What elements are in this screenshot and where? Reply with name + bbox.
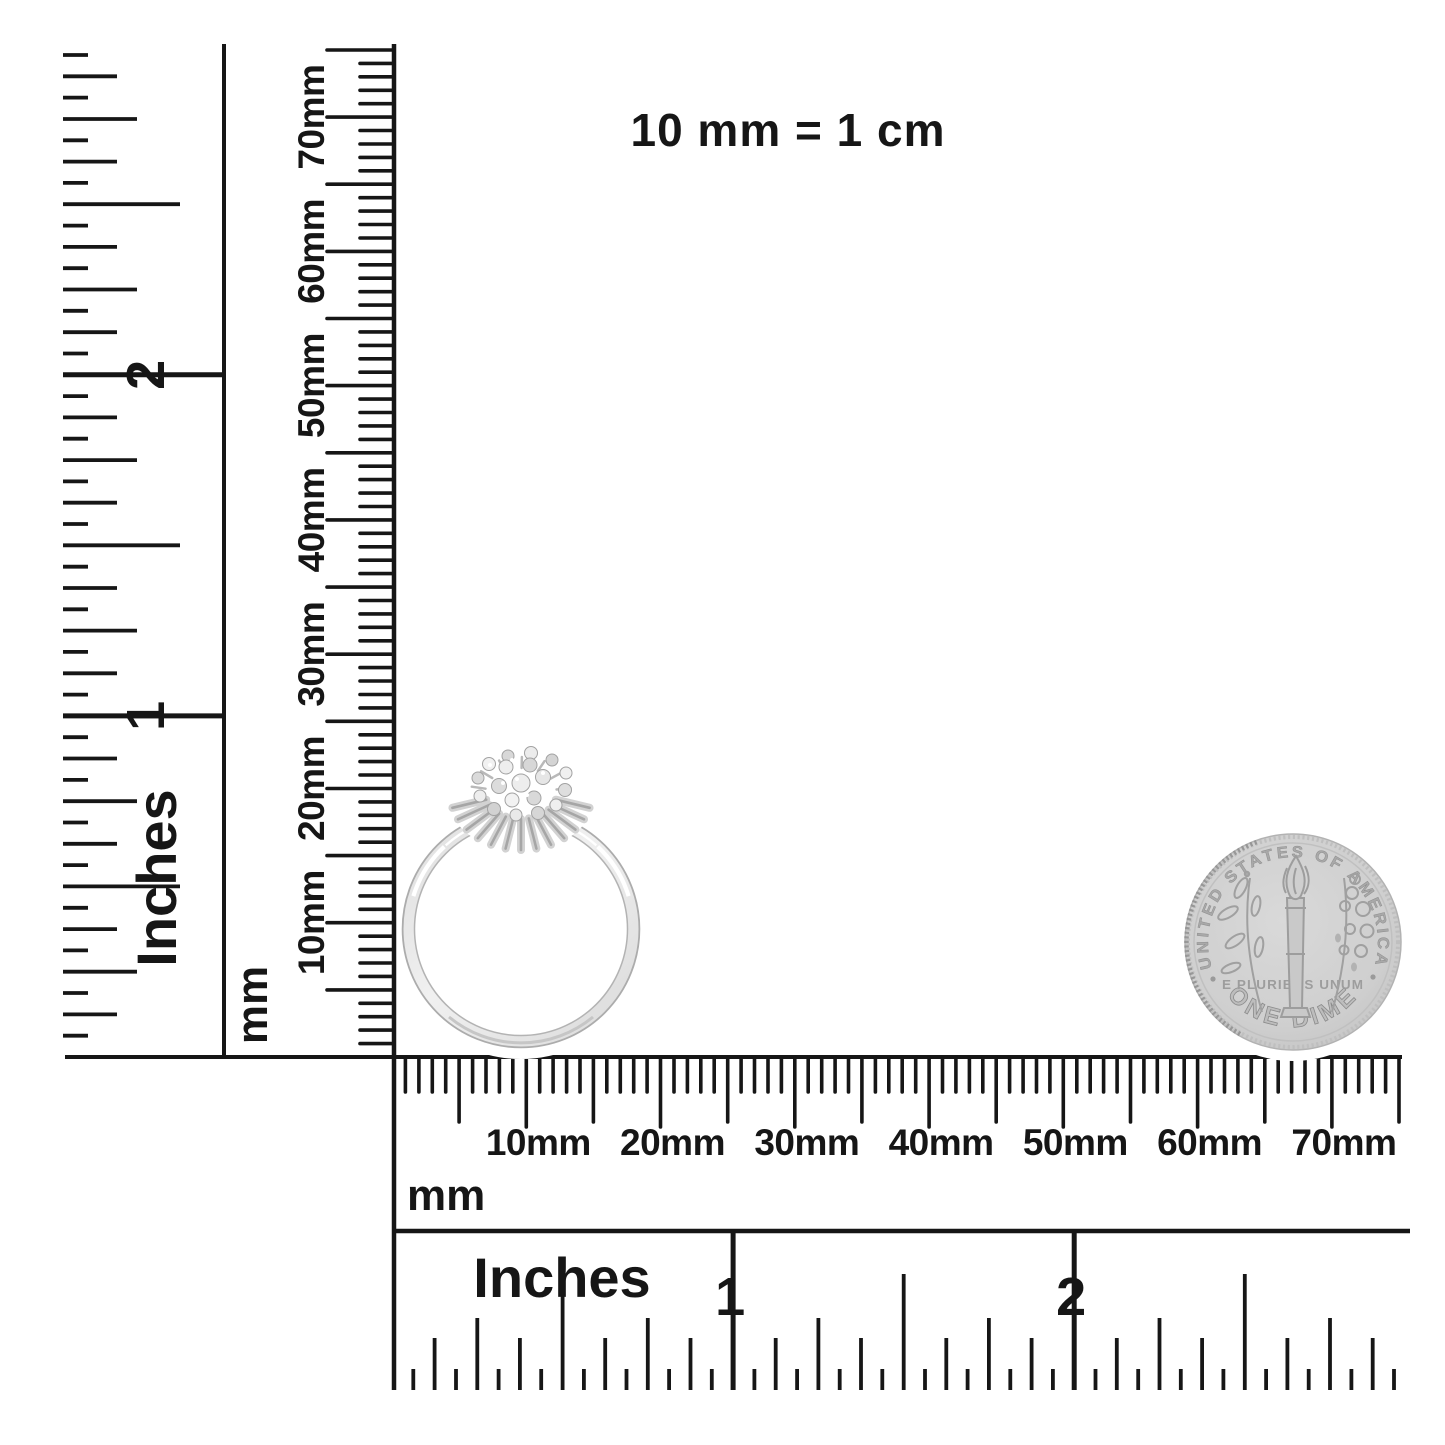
inch-number-label: 2	[116, 360, 176, 390]
diamond-stone	[472, 772, 484, 784]
dime-coin-image: UNITED STATES OF AMERICA ONE DIME E PLUR…	[1185, 834, 1401, 1054]
inch-number-label: 1	[116, 701, 176, 731]
mm-tick-label: 50mm	[1023, 1122, 1128, 1163]
diamond-stone	[510, 809, 522, 821]
mm-tick-label: 20mm	[291, 736, 332, 841]
diamond-stone	[525, 747, 538, 760]
diamond-stone	[546, 754, 558, 766]
coin-separator-dot-left	[1210, 976, 1215, 981]
diamond-stone	[532, 807, 545, 820]
mm-tick-label: 50mm	[291, 333, 332, 438]
left-inches-unit-label: Inches	[125, 789, 188, 966]
scale-note: 10 mm = 1 cm	[630, 104, 945, 156]
inch-number-label: 2	[1056, 1267, 1086, 1327]
diamond-stone	[499, 760, 513, 774]
diamond-stone	[559, 784, 572, 797]
diamond-stone	[488, 803, 501, 816]
left-mm-unit-label: mm	[228, 966, 277, 1044]
mm-tick-label: 20mm	[620, 1122, 725, 1163]
mm-tick-label: 70mm	[1291, 1122, 1396, 1163]
coin-separator-dot-right	[1370, 974, 1375, 979]
mm-tick-label: 70mm	[291, 65, 332, 170]
diamond-stone	[512, 774, 530, 792]
inch-number-label: 1	[715, 1267, 745, 1327]
mm-tick-label: 30mm	[754, 1122, 859, 1163]
bottom-inches-ruler: Inches 12	[392, 1231, 1410, 1390]
mm-tick-label: 60mm	[1157, 1122, 1262, 1163]
sparkle	[488, 763, 492, 767]
mm-tick-label: 40mm	[889, 1122, 994, 1163]
scale-reference-photo: 10 mm = 1 cm Inches 12 mm 10mm20mm30mm40…	[0, 0, 1445, 1445]
diamond-stone	[474, 790, 486, 802]
sparkle	[501, 781, 505, 785]
bottom-mm-unit-label: mm	[407, 1171, 485, 1220]
scene-svg: 10 mm = 1 cm Inches 12 mm 10mm20mm30mm40…	[0, 0, 1445, 1445]
left-mm-ruler: mm 10mm20mm30mm40mm50mm60mm70mm	[228, 44, 394, 1390]
mm-tick-label: 60mm	[291, 199, 332, 304]
left-inches-ruler: Inches 12	[63, 44, 224, 1057]
diamond-stone	[550, 799, 562, 811]
mm-tick-label: 10mm	[291, 870, 332, 975]
diamond-stone	[527, 791, 541, 805]
diamond-stone	[560, 767, 572, 779]
sparkle	[549, 790, 553, 794]
diamond-stone	[492, 779, 507, 794]
bottom-mm-ruler: mm 10mm20mm30mm40mm50mm60mm70mm	[65, 1057, 1402, 1220]
mm-tick-label: 40mm	[291, 467, 332, 572]
diamond-stone	[523, 758, 537, 772]
sparkle	[515, 777, 519, 781]
ring-band-inner-edge	[415, 823, 628, 1036]
mm-tick-label: 10mm	[486, 1122, 591, 1163]
diamond-ring-image	[403, 739, 640, 1053]
mm-tick-label: 30mm	[291, 602, 332, 707]
sparkle	[525, 793, 529, 797]
sparkle	[541, 771, 545, 775]
diamond-stone	[505, 793, 519, 807]
sparkle	[510, 758, 514, 762]
